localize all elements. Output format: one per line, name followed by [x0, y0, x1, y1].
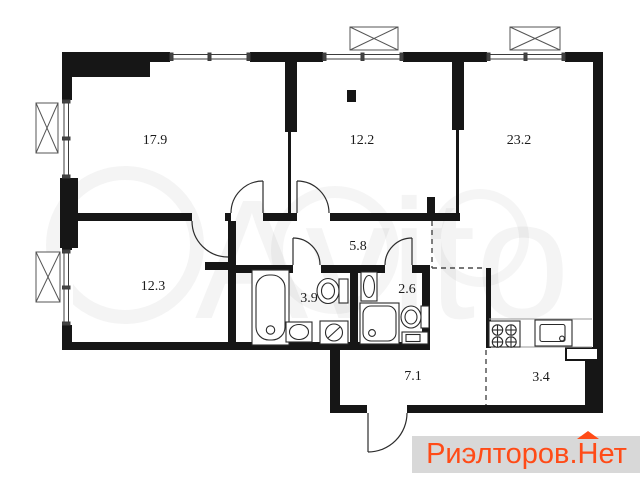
toilet-icon-bath	[317, 279, 348, 304]
area-label-3-4: 3.4	[532, 370, 550, 386]
shower-icon	[360, 303, 399, 344]
window-left-upper	[61, 100, 73, 178]
door-entrance	[368, 413, 407, 452]
window-left-lower	[61, 250, 73, 325]
house-roof-icon	[577, 431, 599, 439]
floorplan-drawing: Avito	[0, 0, 640, 480]
area-label-12-2: 12.2	[350, 133, 375, 149]
area-label-12-3: 12.3	[141, 279, 166, 295]
bathtub-icon	[252, 270, 289, 345]
ac-unit-left-1	[36, 103, 58, 153]
duct-shaft	[566, 348, 598, 360]
entrance-door-gap	[367, 404, 407, 414]
sink-icon-bath	[286, 322, 312, 342]
area-label-23-2: 23.2	[507, 133, 532, 149]
brand-text-left: Риэлторов.	[426, 438, 577, 471]
area-label-5-8: 5.8	[349, 239, 367, 255]
ac-unit-top-2	[510, 27, 560, 50]
brand-text-right: ет	[598, 438, 626, 471]
area-label-17-9: 17.9	[143, 133, 168, 149]
kitchen-sink-icon	[535, 320, 572, 346]
brand-watermark: Риэлторов.Нет	[412, 436, 640, 473]
window-23-2	[487, 52, 565, 62]
window-17-9	[170, 52, 250, 62]
window-12-2	[323, 52, 403, 62]
sink-icon-wc	[361, 272, 377, 301]
stove-icon	[489, 321, 520, 348]
area-label-3-9: 3.9	[300, 291, 318, 307]
area-label-2-6: 2.6	[398, 282, 416, 298]
area-label-7-1: 7.1	[404, 369, 422, 385]
toilet-icon-wc	[401, 306, 429, 328]
ac-unit-top-1	[350, 27, 398, 50]
washing-machine-icon	[320, 321, 348, 344]
vanity-icon	[402, 332, 428, 344]
ac-unit-left-2	[36, 252, 60, 302]
floorplan-image: Avito	[0, 0, 640, 480]
brand-letter-n: Н	[578, 438, 599, 471]
